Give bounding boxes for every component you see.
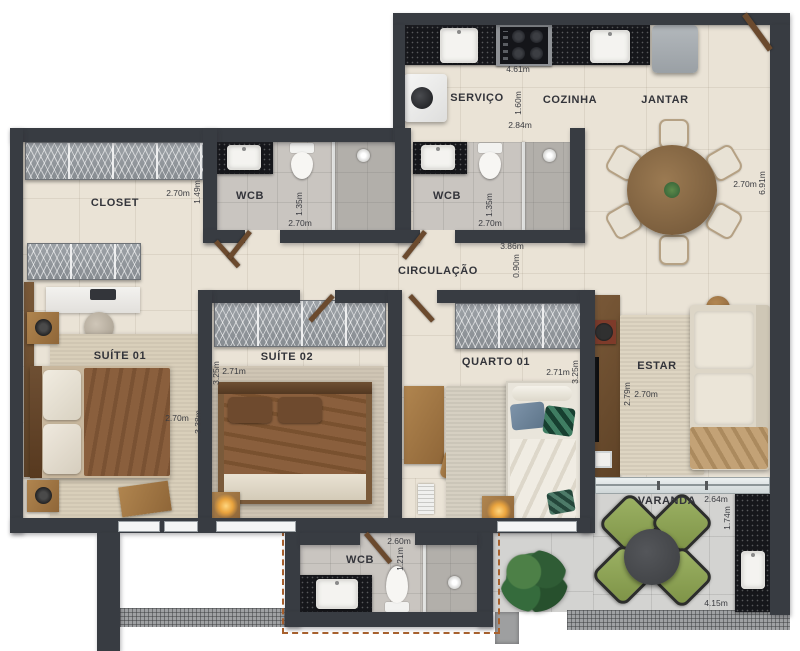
quarto01-bed: [506, 381, 584, 527]
room-label-servico: SERVIÇO: [450, 92, 504, 104]
wcb2-sink: [421, 145, 455, 170]
wall-suite-divider-2: [388, 290, 402, 518]
suite02-bed: [218, 382, 372, 504]
wall-wcb-divider: [395, 128, 411, 243]
wall-bottom-left-column: [97, 533, 120, 651]
measurement-varanda-width: 2.64m: [704, 494, 728, 504]
wall-quarto-right: [580, 290, 595, 533]
wall-wcb3-top-a: [300, 533, 360, 545]
wcb2-shower-head: [543, 149, 556, 162]
wall-right: [770, 25, 790, 615]
wcb1-shower-head: [357, 149, 370, 162]
wall-wcb3-bottom: [285, 612, 493, 627]
sofa-cushion: [694, 311, 754, 369]
measurement-wcb2-depth: 1.35m: [484, 193, 494, 217]
laundry-tank-sink: [440, 28, 478, 63]
floor-plan: SERVIÇO COZINHA JANTAR CLOSET WCB WCB CI…: [0, 0, 800, 651]
suite01-wardrobe: [27, 243, 141, 280]
suite02-lamp-glow: [214, 494, 238, 518]
bed-pillow: [43, 424, 81, 474]
wall-suite-divider-1: [198, 290, 212, 518]
suite02-window: [216, 521, 296, 532]
measurement-estar-depth: 2.79m: [622, 382, 632, 406]
wall-wcb2-right: [570, 128, 585, 243]
bed-duvet: [84, 368, 170, 476]
bed-sheet: [224, 474, 366, 500]
bed-pillow: [228, 397, 272, 423]
closet-wardrobe: [25, 142, 205, 180]
wcb2-shower-glass: [522, 142, 525, 230]
measurement-wcb2-width: 2.70m: [478, 218, 502, 228]
sliding-door-rail: [595, 484, 770, 486]
table-centerpiece-plant: [664, 182, 680, 198]
measurement-suite02-depth: 3.25m: [211, 361, 221, 385]
bed-pillow: [43, 370, 81, 420]
measurement-varanda-depth: 1.74m: [722, 506, 732, 530]
wcb3-sink: [316, 579, 358, 609]
burner: [512, 47, 525, 60]
measurement-jantar-width: 2.70m: [733, 179, 757, 189]
measurement-wcb1-width: 2.70m: [288, 218, 312, 228]
wall-wcb3-top-b: [415, 533, 477, 545]
wall-circulation-south-a: [203, 290, 300, 303]
drainage-grate-left: [120, 608, 285, 627]
bed-headboard: [218, 382, 372, 394]
drainage-grate-right: [567, 610, 790, 630]
sliding-door-handle: [705, 481, 708, 490]
bed-headboard: [30, 366, 42, 478]
varanda-sliding-door: [595, 477, 770, 494]
room-label-cozinha: COZINHA: [543, 94, 597, 106]
wall-left: [10, 128, 23, 533]
wcb3-shower-head: [448, 576, 461, 589]
bed-pillow-green: [542, 405, 576, 437]
room-label-circulacao: CIRCULAÇÃO: [398, 265, 478, 277]
suite01-lamp-bottom: [35, 487, 52, 504]
wall-kitchen-left: [393, 25, 405, 142]
washing-machine: [404, 74, 447, 122]
burner: [530, 30, 543, 43]
room-label-suite02: SUÍTE 02: [261, 351, 314, 363]
room-label-suite01: SUÍTE 01: [94, 350, 147, 362]
measurement-suite01-depth: 3.38m: [193, 410, 203, 434]
kitchen-sink: [590, 30, 630, 63]
measurement-circulacao-depth: 0.90m: [511, 254, 521, 278]
sliding-door-handle: [657, 481, 660, 490]
suite02-wardrobe: [214, 300, 386, 347]
measurement-wcb3-width: 2.60m: [387, 536, 411, 546]
room-label-varanda: VARANDA: [638, 495, 696, 507]
burner: [512, 30, 525, 43]
suite01-window: [118, 521, 160, 532]
dining-chair: [659, 235, 689, 265]
tv-screen: [595, 357, 599, 442]
sofa-cushion: [694, 373, 754, 425]
varanda-table: [624, 529, 680, 585]
burner: [530, 47, 543, 60]
suite01-bed: [30, 366, 170, 478]
suite01-lamp-top: [35, 319, 52, 336]
bed-bolster: [512, 386, 572, 401]
wall-kitchen-top: [393, 13, 790, 25]
bed-pillow: [278, 397, 322, 423]
quarto01-window: [497, 521, 577, 532]
wall-closet-right: [203, 128, 217, 243]
measurement-closet-width: 2.70m: [166, 188, 190, 198]
measurement-servico-width: 2.84m: [508, 120, 532, 130]
room-label-quarto01: QUARTO 01: [462, 356, 530, 368]
wcb3-toilet: [384, 566, 410, 612]
measurement-closet-depth: 1.49m: [192, 180, 202, 204]
sofa: [690, 305, 770, 470]
quarto01-wardrobe: [455, 303, 583, 349]
suite01-window-2: [164, 521, 198, 532]
measurement-suite01-width: 2.70m: [165, 413, 189, 423]
picture-frame: [594, 451, 612, 468]
wcb2-toilet: [477, 143, 503, 179]
quarto01-ac-panel: [418, 484, 434, 514]
wcb1-sink: [227, 145, 261, 170]
wcb1-shower-glass: [332, 142, 335, 230]
quarto01-desk: [404, 386, 444, 464]
fridge: [652, 25, 698, 73]
washer-lid: [411, 87, 433, 109]
bed-pillow-blue: [510, 401, 547, 430]
vanity-monitor: [90, 289, 116, 300]
measurement-servico-depth: 1.60m: [513, 91, 523, 115]
varanda-sink: [741, 551, 765, 589]
sofa-throw-blanket: [690, 427, 768, 469]
wcb1-toilet: [289, 143, 315, 179]
measurement-varanda-total: 4.15m: [704, 598, 728, 608]
measurement-jantar-depth: 6.91m: [757, 171, 767, 195]
measurement-wcb3-depth: 1.21m: [395, 547, 405, 571]
wall-circulation-north-b: [280, 230, 420, 243]
room-label-wcb2: WCB: [433, 190, 461, 202]
varanda-plant: [500, 550, 568, 612]
stove-knobs: [503, 31, 508, 60]
measurement-quarto01-width: 2.71m: [546, 367, 570, 377]
stove-cooktop: [500, 27, 548, 64]
room-label-estar: ESTAR: [637, 360, 676, 372]
room-label-wcb1: WCB: [236, 190, 264, 202]
room-label-closet: CLOSET: [91, 197, 139, 209]
measurement-circulacao-width: 3.86m: [500, 241, 524, 251]
measurement-cozinha-width: 4.61m: [506, 64, 530, 74]
measurement-quarto01-depth: 3.25m: [570, 360, 580, 384]
wall-circulation-south-b: [335, 290, 388, 303]
room-label-jantar: JANTAR: [641, 94, 688, 106]
measurement-suite02-width: 2.71m: [222, 366, 246, 376]
wall-circulation-south-c: [437, 290, 590, 303]
measurement-estar-width: 2.70m: [634, 389, 658, 399]
record-disc: [595, 323, 613, 341]
room-label-wcb3: WCB: [346, 554, 374, 566]
bed-throw-green: [546, 489, 575, 515]
measurement-wcb1-depth: 1.35m: [294, 192, 304, 216]
